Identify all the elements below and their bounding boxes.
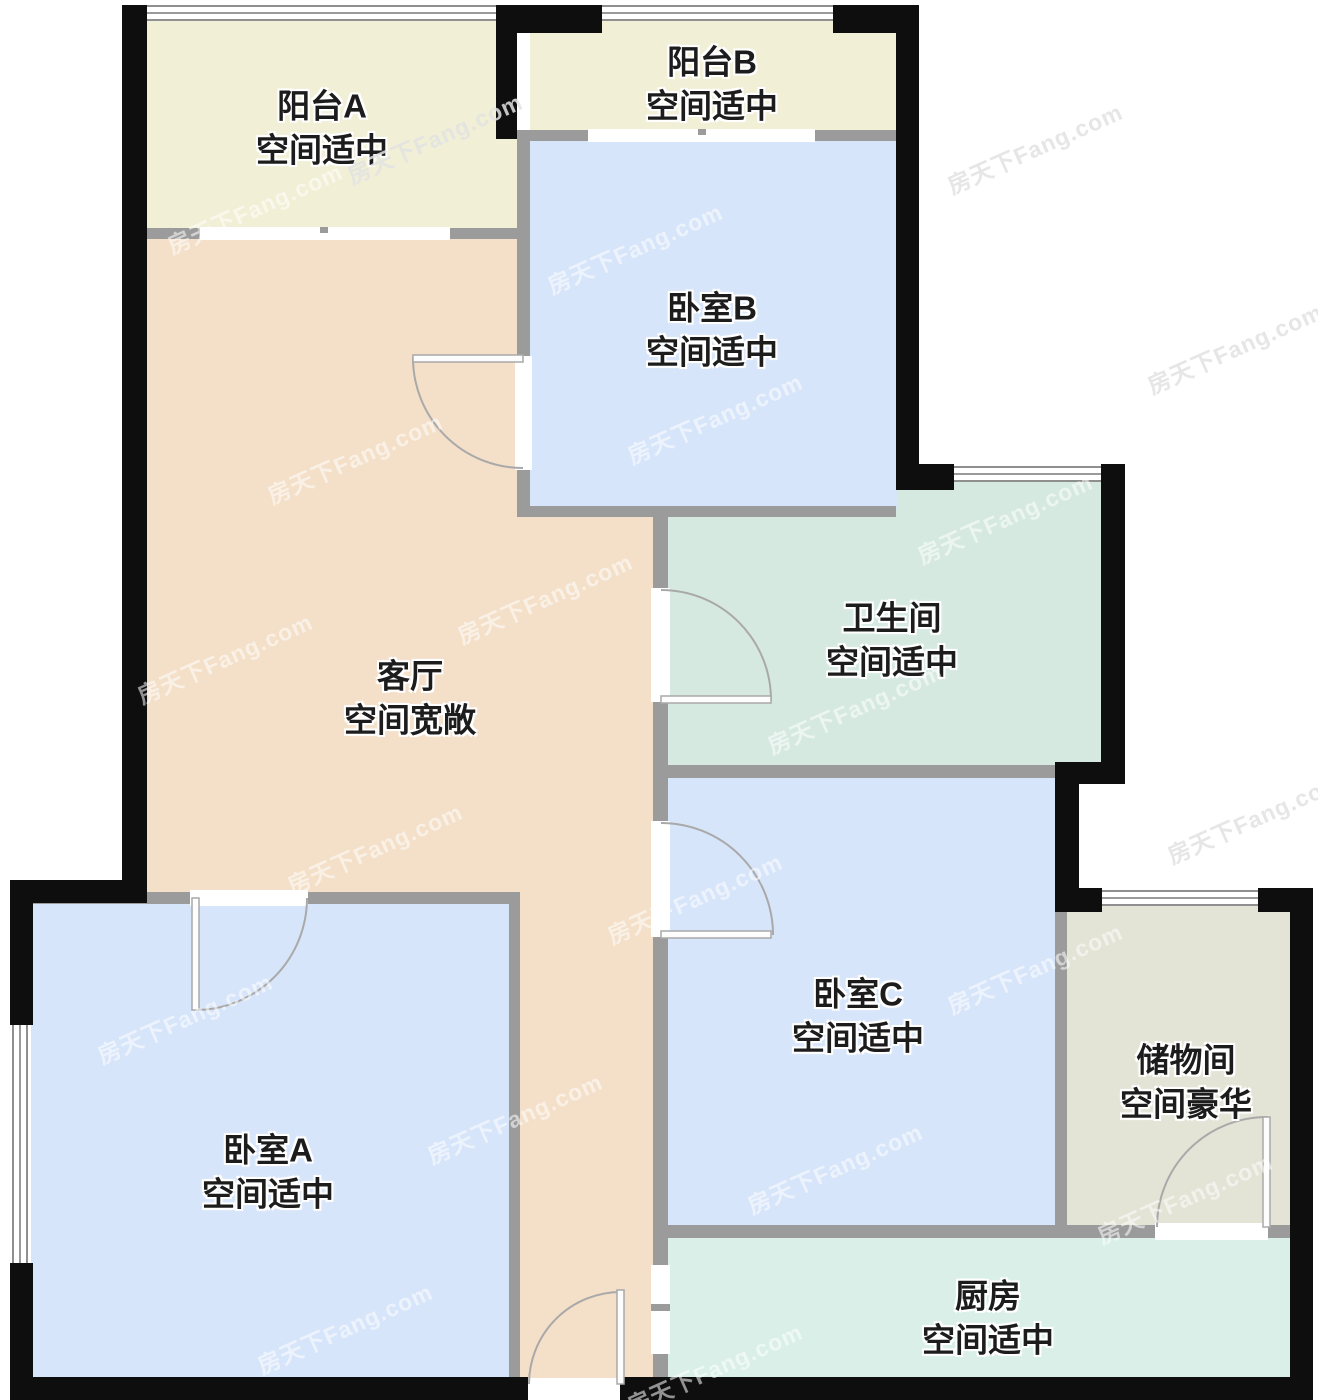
wall-balcony-a-right: [496, 5, 517, 139]
room-name: 卧室B: [646, 286, 778, 330]
wall-bedroom-b-right: [896, 5, 919, 490]
room-name: 客厅: [344, 654, 476, 698]
wall-storage-top-right-corner: [1258, 888, 1313, 912]
floor-plan: 阳台A 空间适中 阳台B 空间适中 卧室B 空间适中 客厅 空间宽敞 卫生间 空…: [0, 0, 1318, 1400]
slider-divider-kitchen: [651, 1304, 670, 1311]
wall-bedroom-c-right: [1055, 762, 1079, 912]
room-name: 阳台B: [646, 40, 778, 84]
wall-bathroom-bottom: [653, 765, 1057, 778]
label-storage: 储物间 空间豪华: [1120, 1038, 1252, 1125]
room-name: 厨房: [922, 1274, 1054, 1318]
watermark: 房天下Fang.com: [941, 93, 1127, 201]
room-descriptor: 空间适中: [256, 128, 388, 172]
room-descriptor: 空间适中: [792, 1016, 924, 1060]
wall-bathroom-right: [1101, 464, 1125, 784]
window-balcony-a: [147, 5, 496, 21]
room-name: 储物间: [1120, 1038, 1252, 1082]
wall-bedroom-a-left-upper: [10, 880, 33, 1025]
slider-divider-balcony-b: [698, 129, 706, 135]
wall-bedroom-b-bottom: [517, 506, 896, 517]
opening-storage-door: [1155, 1223, 1268, 1240]
wall-exterior-left: [122, 5, 147, 903]
wall-storage-left: [1055, 912, 1067, 1227]
room-descriptor: 空间适中: [202, 1172, 334, 1216]
room-name: 卫生间: [826, 596, 958, 640]
watermark: 房天下Fang.com: [1141, 293, 1318, 401]
window-bathroom: [954, 466, 1101, 482]
label-bedroom-b: 卧室B 空间适中: [646, 286, 778, 373]
window-storage: [1102, 890, 1258, 906]
opening-entry-door: [528, 1378, 620, 1400]
wall-balcony-b-top-left: [517, 5, 602, 33]
label-balcony-a: 阳台A 空间适中: [256, 84, 388, 171]
wall-exterior-bottom-left: [10, 1377, 528, 1400]
wall-bedroom-a-right: [509, 892, 520, 1377]
label-balcony-b: 阳台B 空间适中: [646, 40, 778, 127]
room-name: 阳台A: [256, 84, 388, 128]
wall-balcony-b-top-right: [833, 5, 919, 33]
opening-bedroom-c-door: [651, 821, 670, 937]
room-name: 卧室C: [792, 972, 924, 1016]
window-balcony-b: [602, 5, 833, 21]
room-descriptor: 空间适中: [922, 1318, 1054, 1362]
label-bedroom-c: 卧室C 空间适中: [792, 972, 924, 1059]
label-bedroom-a: 卧室A 空间适中: [202, 1128, 334, 1215]
room-name: 卧室A: [202, 1128, 334, 1172]
opening-bathroom-door: [651, 588, 670, 702]
label-kitchen: 厨房 空间适中: [922, 1274, 1054, 1361]
room-descriptor: 空间适中: [826, 640, 958, 684]
label-bathroom: 卫生间 空间适中: [826, 596, 958, 683]
wall-exterior-bottom-right: [620, 1377, 1313, 1400]
window-bedroom-a: [12, 1025, 28, 1263]
wall-exterior-right-lower: [1290, 888, 1313, 1400]
opening-bedroom-a-door: [190, 890, 308, 906]
room-descriptor: 空间豪华: [1120, 1082, 1252, 1126]
slider-divider-balcony-a: [320, 227, 328, 233]
room-descriptor: 空间适中: [646, 330, 778, 374]
label-living-room: 客厅 空间宽敞: [344, 654, 476, 741]
room-descriptor: 空间宽敞: [344, 698, 476, 742]
opening-bedroom-b-door: [515, 356, 532, 470]
watermark: 房天下Fang.com: [1161, 763, 1318, 871]
room-descriptor: 空间适中: [646, 84, 778, 128]
